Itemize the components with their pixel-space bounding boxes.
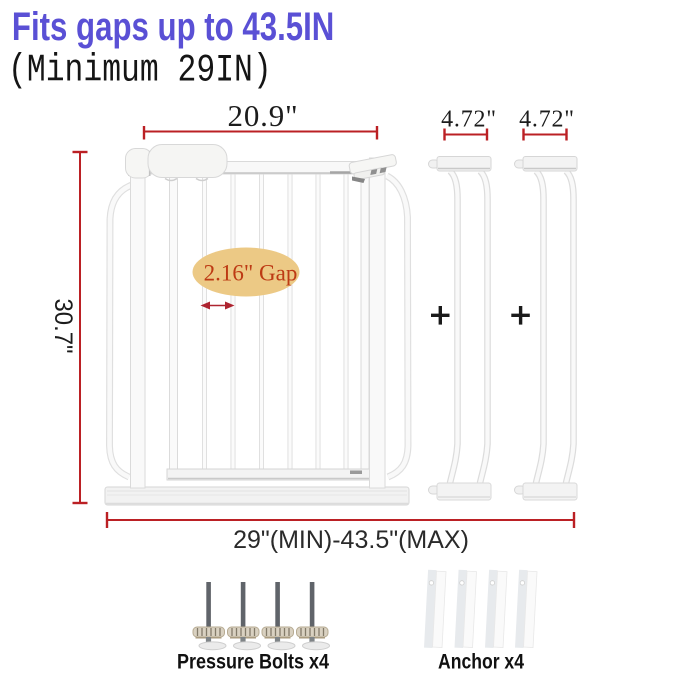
svg-text:4.72": 4.72"	[519, 107, 575, 133]
svg-text:30.7": 30.7"	[49, 299, 77, 354]
svg-text:Anchor x4: Anchor x4	[438, 650, 524, 674]
svg-text:4.72": 4.72"	[441, 107, 497, 133]
svg-text:Pressure Bolts x4: Pressure Bolts x4	[177, 650, 329, 674]
svg-text:(Minimum 29IN): (Minimum 29IN)	[8, 49, 272, 93]
svg-text:20.9": 20.9"	[228, 98, 299, 133]
svg-text:Fits gaps up to 43.5IN: Fits gaps up to 43.5IN	[12, 4, 334, 49]
svg-text:2.16" Gap: 2.16" Gap	[204, 261, 298, 286]
svg-text:29"(MIN)-43.5"(MAX): 29"(MIN)-43.5"(MAX)	[233, 526, 469, 554]
